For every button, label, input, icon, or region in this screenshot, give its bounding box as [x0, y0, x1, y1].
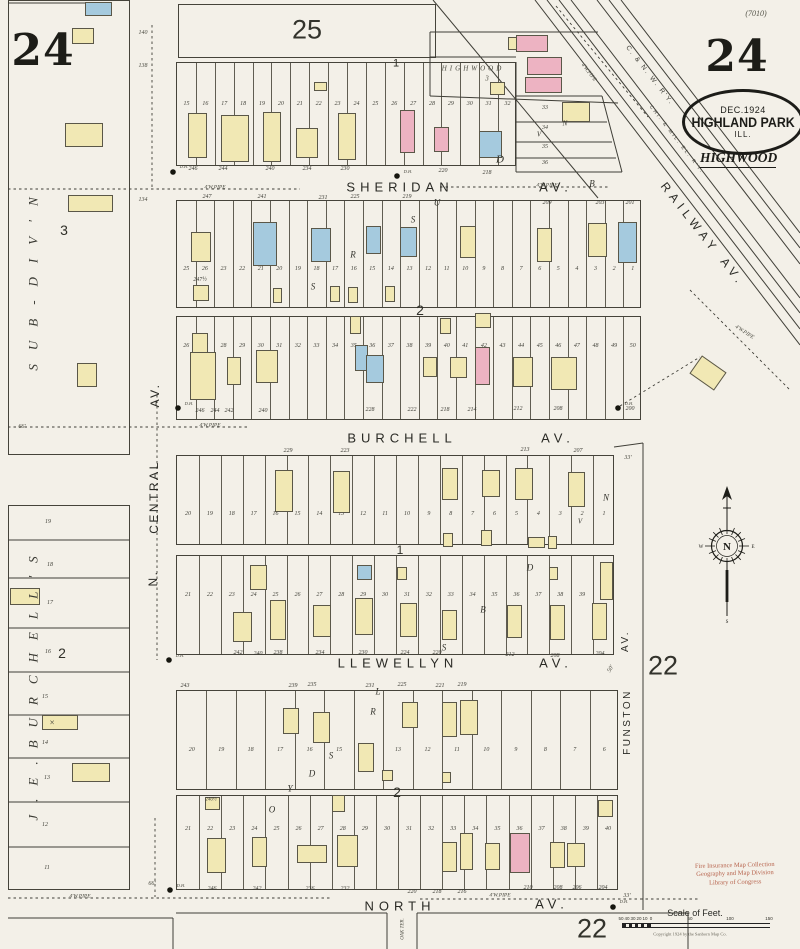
house-number: 247½: [193, 277, 207, 283]
lot-number: 30: [384, 826, 390, 832]
lot-line: [236, 691, 237, 789]
house-number: 244: [219, 166, 228, 172]
house-number: 234: [316, 650, 325, 656]
lot-number: 16: [45, 649, 51, 655]
lot-line: [265, 691, 266, 789]
lot-line: [288, 796, 289, 889]
dimension-note: HIGHWOOD: [442, 66, 505, 73]
house-number: 223: [341, 448, 350, 454]
water-pipe-label: D.H.: [185, 402, 194, 407]
lot-number: 30: [382, 592, 388, 598]
house-number: 246: [189, 166, 198, 172]
lot-number: 11: [382, 511, 388, 517]
building-footprint: [598, 800, 613, 817]
house-number: 204: [599, 885, 608, 891]
adjacent-sheet-ref: 22: [577, 916, 607, 943]
lot-line: [253, 63, 254, 165]
building-footprint: [485, 843, 500, 870]
scale-title: Scale of Feet.: [667, 908, 723, 918]
grade-letter: S: [329, 752, 334, 761]
lot-number: 30: [467, 101, 473, 107]
house-number: 234: [303, 166, 312, 172]
building-footprint: [588, 223, 607, 257]
lot-number: 49: [611, 343, 617, 349]
lot-number: 47: [574, 343, 580, 349]
subdivision-name: J.E.BURCHELL'S: [27, 543, 40, 820]
lot-line: [418, 556, 419, 654]
lot-number: 19: [259, 101, 265, 107]
house-number: 209: [543, 200, 552, 206]
lot-number: 8: [544, 747, 547, 753]
lot-line: [308, 556, 309, 654]
lot-number: 21: [258, 266, 264, 272]
building-footprint: [314, 82, 327, 91]
lot-line: [289, 317, 290, 419]
building-footprint: [434, 127, 449, 152]
lot-number: 6: [603, 747, 606, 753]
house-number: 213: [521, 447, 530, 453]
map-line: [602, 96, 622, 172]
building-footprint: [188, 113, 207, 158]
water-pipe-label: 4'W.PIPE: [199, 423, 220, 429]
building-footprint: [443, 533, 453, 547]
grade-letter: S: [311, 283, 316, 292]
building-footprint: [490, 82, 505, 95]
lot-number: 26: [183, 343, 189, 349]
lot-number: 39: [579, 592, 585, 598]
building-footprint: [355, 598, 373, 635]
lot-line: [326, 317, 327, 419]
lot-number: 33: [314, 343, 320, 349]
lot-number: 33: [448, 592, 454, 598]
house-number: 203: [596, 200, 605, 206]
lot-number: 15: [42, 694, 48, 700]
house-number: 208: [554, 406, 563, 412]
house-number: 220: [433, 650, 442, 656]
railroad-name: C. & N. W. R'Y.: [624, 45, 674, 107]
lot-number: 16: [307, 747, 313, 753]
building-footprint: [442, 468, 458, 500]
scale-tick: 100: [726, 917, 734, 922]
building-footprint: [550, 605, 565, 640]
lot-number: 2: [613, 266, 616, 272]
lot-number: 17: [332, 266, 338, 272]
fire-hydrant: [167, 887, 173, 893]
lot-line: [531, 796, 532, 889]
plate-note: (7010): [745, 10, 766, 18]
lot-number: 19: [207, 511, 213, 517]
lot-number: 36: [369, 343, 375, 349]
house-number: 232: [341, 886, 350, 892]
building-footprint: [600, 562, 613, 600]
grade-letter: N: [563, 121, 568, 128]
grade-letter: O: [269, 806, 276, 815]
building-footprint: [68, 195, 113, 212]
house-number: 243: [181, 683, 190, 689]
lot-number: 25: [183, 266, 189, 272]
lot-number: 12: [425, 266, 431, 272]
lot-number: 8: [501, 266, 504, 272]
lot-number: 25: [372, 101, 378, 107]
copyright-note: Copyright 1924 by the Sanborn Map Co.: [653, 932, 727, 937]
building-footprint: [397, 567, 407, 580]
lot-line: [590, 691, 591, 789]
building-footprint: [515, 468, 533, 500]
lot-number: 18: [314, 266, 320, 272]
water-pipe-label: 4'W.PIPE: [579, 63, 596, 83]
grade-letter: R: [370, 708, 376, 717]
building-footprint: [256, 350, 278, 383]
street-name: RAILWAY: [659, 180, 722, 256]
lot-number: 41: [462, 343, 468, 349]
building-footprint: [333, 471, 350, 513]
lot-line: [199, 796, 200, 889]
area-name-label: HIGHWOOD: [700, 150, 776, 168]
house-number: 242: [225, 408, 234, 414]
building-footprint: [385, 286, 395, 302]
lot-number: 3: [559, 511, 562, 517]
house-number: 208: [554, 885, 563, 891]
lot-number: 23: [229, 826, 235, 832]
building-footprint: [382, 770, 393, 781]
house-number: 235: [308, 682, 317, 688]
sanborn-map-sheet: DEC.1924 HIGHLAND PARK ILL. HIGHWOOD N W…: [0, 0, 800, 949]
street-name: AV.: [718, 256, 747, 289]
block-number: 2: [416, 303, 424, 317]
street-name: CENTRAL: [148, 460, 160, 534]
lot-line: [374, 556, 375, 654]
lot-number: 17: [277, 747, 283, 753]
lot-number: 32: [505, 101, 511, 107]
sheet-number: 24: [11, 29, 74, 73]
building-footprint: [338, 113, 356, 160]
lot-line: [243, 456, 244, 544]
building-footprint: [442, 610, 457, 640]
fire-hydrant: [166, 657, 172, 663]
badge-state: ILL.: [734, 130, 751, 139]
lot-number: 28: [340, 826, 346, 832]
lot-line: [243, 796, 244, 889]
lot-line: [549, 317, 550, 419]
house-number: 214: [468, 407, 477, 413]
fire-hydrant: [170, 169, 176, 175]
house-number: 240: [254, 651, 263, 657]
building-footprint: [442, 772, 451, 783]
lot-number: 12: [424, 747, 430, 753]
water-pipe-label: D.H.: [180, 165, 189, 170]
lot-line: [290, 63, 291, 165]
lot-number: 36: [517, 826, 523, 832]
building-footprint: [460, 833, 473, 870]
lot-number: 4: [575, 266, 578, 272]
block-number: 1: [393, 59, 399, 70]
lot-number: 17: [221, 101, 227, 107]
lot-number: 4: [537, 511, 540, 517]
house-number: 246: [208, 886, 217, 892]
lot-number: 26: [294, 592, 300, 598]
building-footprint: [337, 835, 358, 867]
lot-number: 26: [296, 826, 302, 832]
lot-line: [549, 456, 550, 544]
grade-letter: ×: [49, 719, 55, 728]
lot-number: 48: [593, 343, 599, 349]
lot-line: [493, 317, 494, 419]
building-footprint: [330, 286, 340, 302]
lot-number: 7: [573, 747, 576, 753]
building-footprint: [350, 316, 361, 334]
lot-number: 10: [462, 266, 468, 272]
lot-line: [460, 63, 461, 165]
lot-number: 32: [295, 343, 301, 349]
grade-letter: D: [527, 564, 534, 573]
lot-line: [206, 691, 207, 789]
building-footprint: [357, 565, 372, 580]
lot-number: 28: [429, 101, 435, 107]
building-footprint: [311, 228, 331, 262]
building-footprint: [442, 702, 457, 737]
building-footprint: [366, 226, 381, 254]
house-number: 221: [436, 683, 445, 689]
building-footprint: [297, 845, 327, 863]
grade-letter: V: [578, 519, 582, 526]
lot-number: 19: [218, 747, 224, 753]
lot-number: 20: [276, 266, 282, 272]
house-number: 216: [458, 889, 467, 895]
scale-bar: [622, 923, 770, 928]
lot-number: 24: [251, 592, 257, 598]
lot-number: 14: [316, 511, 322, 517]
street-name: AV.: [535, 898, 569, 911]
street-name: SHERIDAN: [346, 181, 453, 194]
house-number: 218: [483, 170, 492, 176]
lot-number: 12: [360, 511, 366, 517]
building-footprint: [460, 226, 476, 258]
lot-number: 34: [472, 826, 478, 832]
lot-line: [215, 63, 216, 165]
lot-number: 35: [542, 144, 548, 150]
building-footprint: [400, 227, 417, 257]
city-block: 2019181716151413121110987654321: [176, 455, 614, 545]
building-footprint: [400, 603, 417, 637]
lot-number: 23: [229, 592, 235, 598]
lot-line: [233, 201, 234, 307]
street-name: LLEWELLYN: [338, 657, 459, 670]
adjacent-sheet-ref: 22: [648, 653, 678, 680]
lot-line: [251, 317, 252, 419]
lot-line: [456, 201, 457, 307]
street-name: AV.: [621, 630, 631, 652]
compass-east-letter: E: [751, 545, 754, 550]
compass-rose: N W E S: [696, 484, 758, 624]
house-number: 239: [289, 683, 298, 689]
lot-number: 5: [515, 511, 518, 517]
building-footprint: [263, 112, 281, 162]
building-footprint: [567, 843, 585, 867]
house-number: 220: [408, 889, 417, 895]
building-footprint: [537, 228, 552, 262]
lot-number: 7: [520, 266, 523, 272]
building-footprint: [440, 318, 451, 334]
water-pipe-label: D.H.: [625, 402, 634, 407]
lot-number: 32: [426, 592, 432, 598]
badge-city: HIGHLAND PARK: [691, 115, 794, 130]
scale-tick: 50: [618, 917, 623, 922]
lot-number: 16: [202, 101, 208, 107]
building-footprint: [233, 612, 252, 642]
house-number: 231: [319, 195, 328, 201]
lot-line: [568, 201, 569, 307]
lot-number: 36: [542, 160, 548, 166]
building-footprint: [450, 357, 467, 378]
lot-number: 33: [542, 105, 548, 111]
building-footprint: [548, 536, 557, 549]
lot-number: 26: [202, 266, 208, 272]
lot-line: [571, 556, 572, 654]
lot-line: [214, 201, 215, 307]
lot-line: [221, 556, 222, 654]
house-number: 240: [259, 408, 268, 414]
house-number: 206: [573, 885, 582, 891]
grade-letter: S: [442, 644, 447, 653]
lot-number: 18: [248, 747, 254, 753]
grade-letter: D: [309, 770, 316, 779]
house-number: 219: [458, 682, 467, 688]
fire-hydrant: [394, 173, 400, 179]
building-footprint: [475, 347, 490, 385]
lot-number: 13: [44, 775, 50, 781]
grade-letter: N: [603, 494, 609, 503]
lot-number: 9: [482, 266, 485, 272]
library-of-congress-stamp: Fire Insurance Map Collection Geography …: [668, 860, 800, 889]
block-number: 2: [58, 646, 66, 660]
lot-number: 2: [581, 511, 584, 517]
building-footprint: [191, 232, 211, 262]
lot-line: [374, 456, 375, 544]
lot-line: [530, 201, 531, 307]
lot-line: [419, 317, 420, 419]
lot-number: 37: [535, 592, 541, 598]
lot-number: 29: [362, 826, 368, 832]
lot-line: [593, 456, 594, 544]
lot-number: 46: [555, 343, 561, 349]
lot-line: [462, 556, 463, 654]
lot-line: [344, 317, 345, 419]
lot-line: [352, 556, 353, 654]
building-footprint: [275, 470, 293, 512]
building-footprint: [366, 355, 384, 383]
lot-number: 14: [42, 740, 48, 746]
house-number: 220: [439, 168, 448, 174]
house-number: 238: [274, 650, 283, 656]
lot-number: 19: [45, 519, 51, 525]
lot-line: [344, 201, 345, 307]
water-pipe-label: D.H.: [620, 900, 629, 905]
building-footprint: [527, 57, 562, 75]
building-footprint: [221, 115, 249, 162]
lot-line: [354, 691, 355, 789]
lot-number: 31: [406, 826, 412, 832]
lot-number: 19: [295, 266, 301, 272]
adjacent-sheet-ref: 25: [292, 17, 322, 44]
house-number: 247: [203, 194, 212, 200]
lot-number: 37: [539, 826, 545, 832]
street-name: AV.: [541, 432, 575, 445]
house-number: 246: [196, 408, 205, 414]
building-footprint: [313, 712, 330, 743]
dimension-note: 50': [607, 664, 616, 673]
house-number: 242: [253, 886, 262, 892]
water-pipe-label: D.H.: [176, 654, 185, 659]
lot-number: 27: [318, 826, 324, 832]
house-number: 244: [211, 408, 220, 414]
lot-line: [400, 317, 401, 419]
grade-letter: L: [375, 688, 380, 697]
lot-number: 40: [605, 826, 611, 832]
building-footprint: [400, 110, 415, 153]
lot-line: [265, 456, 266, 544]
lot-number: 20: [189, 747, 195, 753]
lot-line: [560, 691, 561, 789]
house-number: 218: [441, 407, 450, 413]
lot-number: 3: [594, 266, 597, 272]
lot-number: 13: [395, 747, 401, 753]
building-footprint: [348, 287, 358, 303]
lot-number: 27: [316, 592, 322, 598]
dimension-note: 140: [139, 30, 148, 36]
lot-number: 25: [273, 826, 279, 832]
dimension-note: 3: [485, 76, 489, 83]
lot-line: [418, 456, 419, 544]
lot-line: [440, 556, 441, 654]
lot-line: [493, 201, 494, 307]
lot-number: 45: [537, 343, 543, 349]
building-footprint: [296, 128, 318, 158]
building-footprint: [482, 470, 500, 497]
house-number: 241: [258, 194, 267, 200]
lot-number: 18: [240, 101, 246, 107]
lot-number: 33: [450, 826, 456, 832]
grade-letter: B: [589, 180, 595, 189]
building-footprint: [273, 288, 282, 303]
building-footprint: [77, 363, 97, 387]
lot-number: 50: [630, 343, 636, 349]
grade-letter: S: [411, 216, 416, 225]
lot-number: 12: [42, 822, 48, 828]
building-footprint: [250, 565, 267, 590]
lot-number: 36: [513, 592, 519, 598]
lot-number: 34: [542, 125, 548, 131]
lot-line: [308, 456, 309, 544]
water-pipe-label: 4'W.PIPE: [69, 894, 90, 900]
lot-number: 28: [221, 343, 227, 349]
lot-line: [605, 317, 606, 419]
lot-line: [199, 556, 200, 654]
lot-number: 8: [449, 511, 452, 517]
building-footprint: [460, 700, 478, 735]
lot-number: 21: [297, 101, 303, 107]
lot-number: 1: [603, 511, 606, 517]
lot-number: 29: [239, 343, 245, 349]
lot-number: 31: [276, 343, 282, 349]
grade-letter: R: [350, 251, 356, 260]
lot-number: 7: [471, 511, 474, 517]
lot-line: [501, 691, 502, 789]
block-number: 2: [393, 785, 401, 799]
lot-number: 24: [353, 101, 359, 107]
house-number: 229: [284, 448, 293, 454]
house-number: 200: [626, 406, 635, 412]
lot-number: 15: [336, 747, 342, 753]
